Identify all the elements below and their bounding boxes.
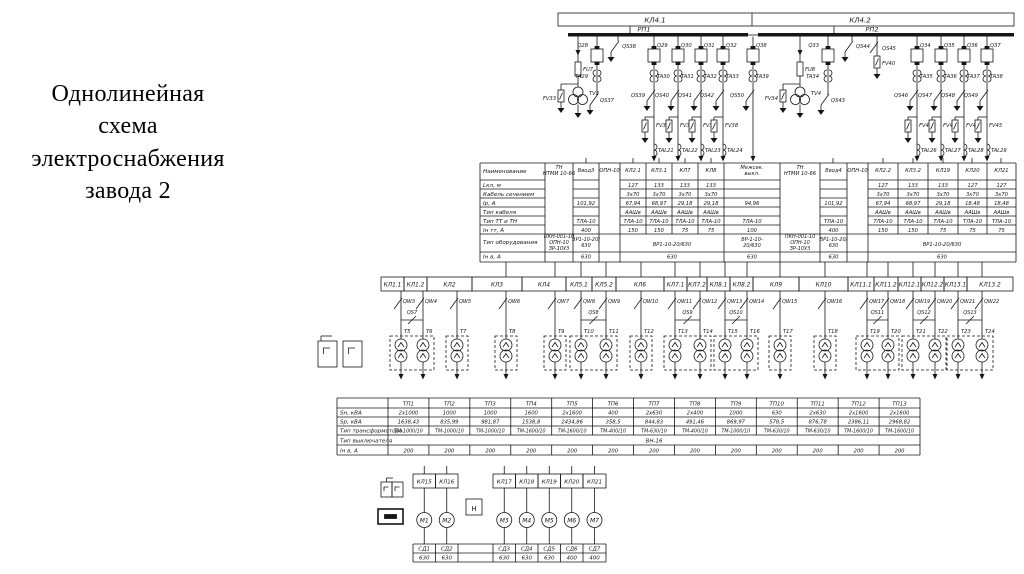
transformer-label: Т22: [938, 329, 948, 335]
motor-cable-label: КЛ20: [564, 480, 580, 486]
label: 981,87: [481, 420, 500, 426]
label: 200: [608, 448, 619, 454]
label: TA32: [704, 74, 717, 80]
label: FU7: [583, 67, 594, 73]
transformer-label: Т19: [870, 329, 880, 335]
label: ТЛА-10: [873, 219, 893, 225]
motor-cable-label: КЛ21: [587, 480, 602, 486]
label: 133: [938, 183, 948, 189]
label: ТП4: [526, 401, 537, 407]
label: QS49: [964, 93, 978, 99]
label: ТЛА-10: [824, 219, 844, 225]
label: QS48: [941, 93, 956, 99]
label: 200: [772, 448, 783, 454]
spec-cell: Ввод4: [825, 168, 842, 174]
spec-cell: КЛ20: [965, 168, 980, 174]
label: FV34: [765, 96, 778, 102]
spec-cell: 20/630: [743, 243, 761, 249]
substation-ТП5: QS8: [570, 310, 617, 380]
label: TA30: [657, 74, 671, 80]
cable-label: КЛ2: [443, 283, 455, 289]
label: TAL22: [682, 148, 698, 154]
rp1-section: FU7TV3FV33Q28TA29QS37QS38Q29TA30QS39FV35…: [543, 37, 743, 162]
switch-label: QW16: [827, 299, 842, 305]
label: 2х1600: [849, 411, 869, 417]
spec-cell: НТМИ 10-66: [543, 171, 576, 177]
transformer-label: Т18: [828, 329, 838, 335]
label: ТП8: [689, 401, 700, 407]
qs-tie-label: QS13: [963, 310, 976, 316]
switch-label: QW9: [608, 299, 620, 305]
switch-label: QW17: [869, 299, 885, 305]
transformer-label: Т17: [783, 329, 793, 335]
label: QS46: [894, 93, 909, 99]
label: FV45: [989, 123, 1003, 129]
transformer-label: Т9: [558, 329, 564, 335]
label: 67,94: [876, 201, 891, 207]
spec-cell: НТМИ 10-66: [784, 171, 817, 177]
label: 68,97: [906, 201, 922, 207]
cable-label: КЛ5.2: [595, 283, 613, 289]
label: 835,99: [440, 420, 458, 426]
label: 2968,82: [889, 420, 910, 426]
label: 200: [404, 448, 415, 454]
label: ТП9: [730, 401, 741, 407]
label: 2х630: [810, 411, 827, 417]
bus-tie-cell: Q38TA39QS50: [730, 35, 769, 162]
label: ТП7: [649, 401, 660, 407]
spec-row-label: Iр, А: [483, 201, 496, 207]
label: ТЛА-10: [742, 219, 762, 225]
label: 29,18: [704, 201, 720, 207]
label: 400: [829, 228, 840, 234]
legend-symbols-bottom: [378, 478, 403, 524]
spec-cell: КЛ7: [680, 168, 692, 174]
label: ТЛА-10: [623, 219, 643, 225]
label: 2х1600: [562, 411, 582, 417]
label: TA31: [681, 74, 694, 80]
sd-value: 630: [419, 556, 430, 562]
label: 100: [747, 228, 758, 234]
spec-row-label: Тип ТТ и ТН: [483, 219, 518, 225]
substation-ТП9: [769, 336, 791, 380]
switch-label: QW20: [937, 299, 952, 305]
sd-label: СД3: [498, 547, 510, 553]
motor-cable-label: КЛ15: [417, 480, 433, 486]
label: 630: [772, 411, 783, 417]
label: 876,78: [809, 420, 828, 426]
label: QS44: [856, 44, 870, 50]
sd-label: СД1: [418, 547, 430, 553]
transformer-label: Т7: [460, 329, 467, 335]
label: 2386,11: [848, 420, 869, 426]
label: TA36: [944, 74, 958, 80]
label: FV40: [882, 61, 896, 67]
spec-cell: КЛ2.1: [625, 168, 641, 174]
transformer-label: Т8: [509, 329, 516, 335]
label: 94,96: [745, 201, 761, 207]
substation-ТП13: QS13: [947, 310, 993, 380]
h-box-label: Н: [471, 505, 476, 513]
motor-label: М7: [590, 517, 599, 524]
bus-rp1: [568, 33, 748, 37]
label: ААШв: [964, 210, 981, 216]
label: 127: [968, 183, 979, 189]
label: QS40: [655, 93, 670, 99]
tp-row-label: Тип выключателя: [340, 438, 393, 444]
label: 3х70: [627, 192, 641, 198]
label: ТЛА-10: [903, 219, 923, 225]
label: 200: [895, 448, 906, 454]
spec-merged-inv: 630: [937, 255, 948, 261]
tp-table: Sн, кВАSр, кВАТип трансформатораТип выкл…: [337, 398, 920, 455]
transformer-label: Т5: [404, 329, 411, 335]
label: TAL29: [991, 148, 1007, 154]
motor-label: М6: [567, 517, 576, 524]
label: 127: [878, 183, 889, 189]
switch-label: QW3: [403, 299, 415, 305]
motor-label: М5: [545, 517, 554, 524]
label: Q28: [577, 43, 588, 49]
motor-label: М1: [420, 517, 429, 524]
label: 630: [747, 255, 758, 261]
label: ТМ-400/10: [682, 429, 708, 435]
label: TAL23: [705, 148, 721, 154]
switch-label: QW13: [727, 299, 742, 305]
bus-rp1-label: РП1: [638, 26, 651, 34]
spec-merged-equip: ВР1-10-20/630: [653, 242, 692, 248]
motor-cable-label: КЛ19: [542, 480, 558, 486]
label: 200: [526, 448, 537, 454]
spec-cell: ОПН-10: [599, 168, 620, 174]
spec-row-label: Тип кабеля: [483, 210, 517, 216]
switch-label: QW6: [508, 299, 520, 305]
label: 3х70: [966, 192, 980, 198]
label: 1538,8: [522, 420, 541, 426]
motor-section: КЛ15М1КЛ16М2КЛ17М3КЛ18М4КЛ19М5КЛ20М6КЛ21…: [413, 466, 606, 544]
spec-row-label: Lкл, м: [483, 183, 502, 189]
label: Q31: [704, 43, 715, 49]
label: 2434,86: [561, 420, 583, 426]
label: ТЛА-10: [649, 219, 669, 225]
transformer-label: Т15: [728, 329, 738, 335]
label: ТМ-1000/10: [394, 429, 423, 435]
transformer-label: Т16: [750, 329, 760, 335]
qs-tie-label: QS11: [871, 310, 884, 316]
label: ТЛА-10: [933, 219, 953, 225]
label: ТП5: [567, 401, 578, 407]
motor-label: М4: [522, 517, 531, 524]
label: 844,83: [645, 420, 663, 426]
spec-cell: 630: [829, 243, 839, 249]
switch-label: QW10: [643, 299, 658, 305]
switch-label: QW11: [677, 299, 692, 305]
label: FV38: [725, 123, 739, 129]
spec-merged-equip: ВР1-10-20/630: [923, 242, 962, 248]
substation-ТП10: [814, 336, 836, 380]
spec-cell: выкл.: [744, 171, 759, 177]
label: 578,5: [769, 420, 785, 426]
feeder-kl41-label: КЛ4.1: [644, 17, 665, 25]
label: 127: [628, 183, 639, 189]
label: QS37: [600, 98, 615, 104]
label: TAL21: [658, 148, 674, 154]
label: ТП6: [608, 401, 619, 407]
label: Q30: [681, 43, 692, 49]
cable-label: КЛ13.1: [945, 283, 966, 289]
label: 200: [731, 448, 742, 454]
qs-tie-label: QS9: [682, 310, 692, 316]
label: ТП2: [444, 401, 455, 407]
bus-rp2: [758, 33, 1014, 37]
label: Q34: [920, 43, 931, 49]
label: 150: [654, 228, 665, 234]
label: 2х1600: [890, 411, 910, 417]
motor-cable-label: КЛ18: [519, 480, 535, 486]
tp-row-label: Sн, кВА: [340, 411, 362, 417]
label: TA39: [756, 74, 769, 80]
label: 2х1000: [399, 411, 419, 417]
label: TA37: [967, 74, 981, 80]
cable-label: КЛ1.2: [407, 283, 425, 289]
label: 133: [680, 183, 690, 189]
label: ТМ-1600/10: [844, 429, 873, 435]
qs-tie-label: QS10: [729, 310, 742, 316]
label: 400: [581, 228, 592, 234]
label: ТМ-1000/10: [476, 429, 505, 435]
legend-symbols: [318, 336, 362, 367]
label: TAL27: [945, 148, 961, 154]
switch-label: QW12: [702, 299, 717, 305]
spec-cell: ЗР-10У3: [549, 246, 570, 252]
spec-cell: ЗР-10У3: [790, 246, 811, 252]
label: ТЛА-10: [992, 219, 1012, 225]
slide: Однолинейная схема электроснабжения заво…: [0, 0, 1024, 574]
substation-ТП12: QS12: [902, 310, 946, 380]
label: TA33: [726, 74, 739, 80]
cable-label: КЛ11.2: [875, 283, 897, 289]
qs-tie-label: QS8: [588, 310, 598, 316]
transformer-label: Т6: [426, 329, 433, 335]
label: Q37: [990, 43, 1001, 49]
cable-label: КЛ4: [538, 283, 550, 289]
label: 3х70: [653, 192, 667, 198]
substation-ТП11: QS11: [856, 310, 899, 380]
label: 2х630: [646, 411, 663, 417]
tp-row-label: Iн в, А: [340, 448, 358, 454]
label: 200: [690, 448, 701, 454]
sd-value: 630: [442, 556, 453, 562]
supply-section: КЛ4.1КЛ4.2РП1РП2: [558, 13, 1014, 37]
sd-value: 630: [522, 556, 533, 562]
label: TAL24: [727, 148, 743, 154]
sd-value: 630: [499, 556, 510, 562]
switch-label: QW5: [459, 299, 471, 305]
substation-ТП1: QS7: [390, 310, 434, 380]
label: 358,5: [606, 420, 622, 426]
cable-label: КЛ7.2: [688, 283, 706, 289]
spec-cell: ОПН-10: [847, 168, 868, 174]
label: FV33: [543, 96, 556, 102]
label: ТМ-630/10: [805, 429, 831, 435]
label: Q35: [944, 43, 955, 49]
spec-cell: КЛ2.2: [875, 168, 891, 174]
spec-table: НаименованиеLкл, мКабель сечениемIр, АТи…: [480, 158, 1016, 262]
cable-label: КЛ12.2: [922, 283, 944, 289]
label: ААШв: [874, 210, 891, 216]
label: 1000: [443, 411, 457, 417]
label: ТП3: [485, 401, 496, 407]
label: 1638,43: [398, 420, 419, 426]
single-line-diagram: КЛ4.1КЛ4.2РП1РП2FU7TV3FV33Q28TA29QS37QS3…: [0, 0, 1024, 574]
label: 127: [997, 183, 1008, 189]
label: 18,48: [994, 201, 1010, 207]
label: QS50: [730, 93, 745, 99]
label: ТЛА-10: [576, 219, 596, 225]
label: 29,18: [678, 201, 694, 207]
substation-ТП2: [446, 336, 468, 380]
transformer-label: Т23: [961, 329, 971, 335]
transformer-label: Т21: [916, 329, 926, 335]
spec-cell: КЛ21: [994, 168, 1008, 174]
sd-value: 400: [567, 556, 578, 562]
switch-label: QW8: [583, 299, 595, 305]
sd-label: СД2: [441, 547, 453, 553]
label: 200: [813, 448, 824, 454]
tp-row-label: Sр, кВА: [340, 420, 362, 426]
cable-label: КЛ3: [491, 283, 503, 289]
label: QS41: [678, 93, 692, 99]
label: QS47: [918, 93, 933, 99]
switch-label: QW15: [782, 299, 797, 305]
label: 3х70: [705, 192, 719, 198]
label: Q38: [756, 43, 767, 49]
label: 3х70: [679, 192, 693, 198]
label: ААШв: [676, 210, 693, 216]
cable-label: КЛ8.2: [733, 283, 751, 289]
label: 150: [628, 228, 639, 234]
sd-label: СД7: [589, 547, 601, 553]
label: QS39: [631, 93, 645, 99]
label: ТЛА-10: [701, 219, 721, 225]
label: ТМ-1600/10: [885, 429, 914, 435]
substation-ТП3: [495, 336, 517, 380]
switch-label: QW14: [749, 299, 764, 305]
cable-label: КЛ8.1: [710, 283, 728, 289]
label: 3х70: [907, 192, 921, 198]
label: 133: [654, 183, 664, 189]
label: ТП13: [892, 401, 907, 407]
label: Q32: [726, 43, 737, 49]
cable-label: КЛ13.2: [979, 283, 1001, 289]
label: 630: [581, 255, 592, 261]
switch-label: QW7: [557, 299, 570, 305]
spec-cell: КЛ3.2: [905, 168, 921, 174]
tp-breaker-type: ВН-16: [646, 438, 663, 444]
label: 75: [998, 228, 1005, 234]
switch-label: QW19: [915, 299, 930, 305]
label: ТМ-1000/10: [721, 429, 750, 435]
label: 133: [706, 183, 716, 189]
label: 869,97: [727, 420, 746, 426]
label: TA29: [575, 74, 588, 80]
label: ТМ-630/10: [764, 429, 790, 435]
label: 67,94: [626, 201, 641, 207]
spec-row-label: Наименование: [483, 169, 527, 175]
label: 1600: [525, 411, 539, 417]
motor-label: М3: [500, 517, 509, 524]
switch-label: QW4: [425, 299, 437, 305]
label: 630: [829, 255, 840, 261]
label: ААШв: [904, 210, 921, 216]
sd-label: СД6: [566, 547, 578, 553]
cable-label: КЛ6: [634, 283, 646, 289]
substation-ТП6: [630, 336, 652, 380]
label: 200: [854, 448, 865, 454]
cable-label: КЛ7.1: [667, 283, 685, 289]
spec-cell: 630: [581, 243, 591, 249]
label: ААШв: [702, 210, 719, 216]
sd-label: СД4: [521, 547, 533, 553]
switch-label: QW18: [890, 299, 905, 305]
label: 1000: [729, 411, 743, 417]
sd-table: СД1630СД2630СД3630СД4630СД5630СД6400СД74…: [413, 544, 606, 562]
qs-tie-label: QS7: [407, 310, 418, 316]
motor-label: М2: [442, 517, 451, 524]
feeder-kl42-label: КЛ4.2: [849, 17, 871, 25]
sd-label: СД5: [543, 547, 555, 553]
label: ТЛА-10: [963, 219, 983, 225]
label: 18,48: [965, 201, 981, 207]
label: ТМ-1600/10: [517, 429, 546, 435]
label: 68,97: [652, 201, 668, 207]
label: TA35: [920, 74, 934, 80]
sd-value: 400: [589, 556, 600, 562]
distribution-feeders: QW3Т5QW4Т6QW5Т7QW6Т8QW7Т9QW8Т10QW9Т11QW1…: [394, 291, 999, 339]
label: TV4: [811, 91, 821, 97]
label: 75: [708, 228, 715, 234]
label: QS43: [831, 98, 845, 104]
substation-ТП8: QS10: [714, 310, 758, 380]
spec-row-label: Тип оборудования: [483, 240, 538, 246]
substation-ТП7: QS9: [664, 310, 711, 380]
label: TAL28: [968, 148, 984, 154]
spec-cell: Ввод3: [578, 168, 595, 174]
label: ААШв: [993, 210, 1010, 216]
label: ТП10: [770, 401, 785, 407]
label: 75: [969, 228, 976, 234]
rp2-section: FU8TV4FV34Q33TA34QS43QS44QS45FV40Q34TA35…: [765, 37, 1007, 162]
spec-cell: КЛ3.1: [651, 168, 667, 174]
label: 29,18: [936, 201, 952, 207]
transformer-label: Т12: [644, 329, 654, 335]
transformer-label: Т24: [985, 329, 995, 335]
transformer-label: Т13: [678, 329, 688, 335]
label: TA38: [990, 74, 1004, 80]
label: ААШв: [934, 210, 951, 216]
sd-value: 630: [544, 556, 555, 562]
transformer-label: Т11: [609, 329, 619, 335]
cable-label: КЛ12.1: [899, 283, 920, 289]
transformer-label: Т10: [584, 329, 594, 335]
label: ТМ-630/10: [641, 429, 667, 435]
label: 2х400: [687, 411, 704, 417]
spec-cell: КЛ8: [706, 168, 718, 174]
label: 200: [649, 448, 660, 454]
label: 3х70: [877, 192, 891, 198]
label: 75: [940, 228, 947, 234]
transformer-label: Т20: [891, 329, 901, 335]
